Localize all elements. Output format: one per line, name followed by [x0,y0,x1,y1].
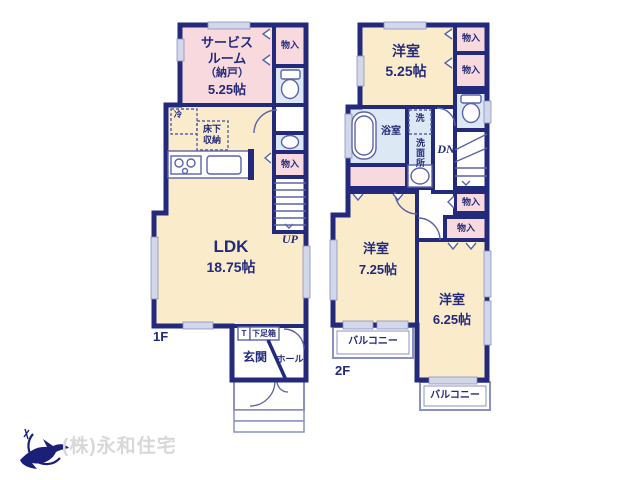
closet-door-mark-icon [448,196,454,208]
service-room-label-1: サービス [201,36,253,49]
floor2-label: 2F [335,364,350,377]
company-name: (株)永和住宅 [62,437,177,456]
bedroom-c-door-arc [418,218,440,240]
porch-step-1 [234,410,304,421]
kitchen-sink-icon [207,156,241,174]
stairs-1f-treads [274,183,306,225]
porch-step-2 [234,421,304,432]
window-bedroom-a-left [357,56,364,86]
closet-1f-lower-label: 物入 [281,160,299,169]
service-room-area: 5.25帖 [208,83,246,96]
window-bedroom-b-left [330,240,337,300]
toilet-2f-bowl-icon [463,104,480,123]
window-bedroom-c-right-1 [484,251,491,297]
basin-1f-icon [282,136,299,149]
window-bedroom-b-bottom-1 [343,321,373,329]
stove-burner-3-icon [183,169,188,174]
toilet-1f-bowl-icon [282,80,299,99]
window-ldk-right [303,246,310,298]
window-toilet-2f-right [484,101,491,123]
stairs-up-label: UP [282,233,298,245]
hallway-1f-shape [274,105,306,133]
stove-burner-2-icon [187,159,195,167]
shoe-box-label: 下足箱 [252,330,276,338]
closet-2f-3-label: 物入 [462,198,480,207]
floor-storage-label-2: 収納 [203,136,221,145]
window-service-top [208,22,250,29]
floorplan-canvas [0,0,640,480]
window-bedroom-c-right-2 [484,301,491,345]
hall-1f-label: ホール [276,355,303,364]
window-ldk-bottom [183,322,213,329]
bath-label: 浴室 [381,127,401,137]
stairs-dn-label: DN [437,143,454,155]
ldk-name: LDK [214,238,249,255]
floor1-label: 1F [153,330,168,343]
closet-2f-2-label: 物入 [462,66,480,75]
ldk-area: 18.75帖 [206,260,255,274]
window-bedroom-c-bottom [429,377,477,384]
counter-end-wall [248,149,254,180]
shoe-t-label: T [242,330,247,338]
bedroom-c-shape [417,240,487,380]
fridge-label: 冷 [174,111,182,119]
closet-2f-4-label: 物入 [457,224,475,233]
floor-storage-label-1: 床下 [203,125,221,134]
bedroom-b-area: 7.25帖 [359,263,397,276]
closet-2f-1-label: 物入 [462,34,480,43]
porch [234,380,304,410]
basin-2f-icon [411,168,429,184]
washroom-label: 洗面所 [415,138,424,168]
window-service-left [177,39,184,61]
balcony-left-label: バルコニー [348,337,398,347]
stairs-2f-shape [455,130,487,188]
window-bedroom-a-top [384,22,426,29]
window-ldk-left [151,237,158,299]
service-room-label-2: ルーム [208,52,247,65]
bedroom-c-area: 6.25帖 [433,313,471,326]
bedroom-a-area: 5.25帖 [385,64,426,78]
bedroom-b-name: 洋室 [363,242,389,255]
balcony-bottom-label: バルコニー [430,391,480,401]
toilet-1f-tank-icon [281,70,300,79]
toilet-2f-tank-icon [461,95,481,103]
closet-2f-bath-shape [348,165,407,188]
washer-label: 洗 [415,114,424,123]
stove-burner-1-icon [175,159,183,167]
service-room-label-3: （納戸） [205,68,249,79]
bedroom-a-name: 洋室 [392,44,420,58]
closet-1f-upper-label: 物入 [281,41,299,50]
entrance-label: 玄関 [243,351,267,363]
window-bedroom-b-bottom-2 [377,321,408,329]
window-bath-left [345,114,352,158]
bedroom-c-name: 洋室 [439,293,465,306]
